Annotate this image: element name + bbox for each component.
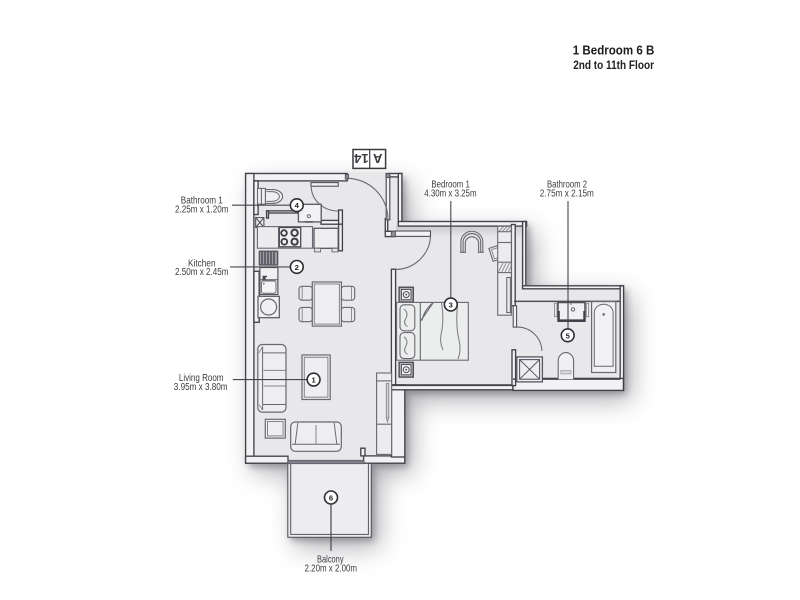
svg-text:2nd to 11th Floor: 2nd to 11th Floor xyxy=(573,58,654,72)
svg-text:14: 14 xyxy=(353,151,368,166)
svg-text:2.20m x 2.00m: 2.20m x 2.00m xyxy=(305,563,358,574)
svg-text:2.50m x 2.45m: 2.50m x 2.45m xyxy=(175,267,229,278)
svg-text:2: 2 xyxy=(295,263,299,272)
svg-text:6: 6 xyxy=(329,494,333,503)
svg-text:4.30m x 3.25m: 4.30m x 3.25m xyxy=(424,188,476,199)
svg-text:3: 3 xyxy=(449,301,453,310)
svg-text:3.95m x 3.80m: 3.95m x 3.80m xyxy=(174,382,228,393)
svg-text:1 Bedroom 6 B: 1 Bedroom 6 B xyxy=(573,43,655,58)
svg-text:2.75m x 2.15m: 2.75m x 2.15m xyxy=(540,188,594,199)
svg-text:2.25m x 1.20m: 2.25m x 1.20m xyxy=(175,204,229,215)
svg-text:A: A xyxy=(372,151,382,166)
